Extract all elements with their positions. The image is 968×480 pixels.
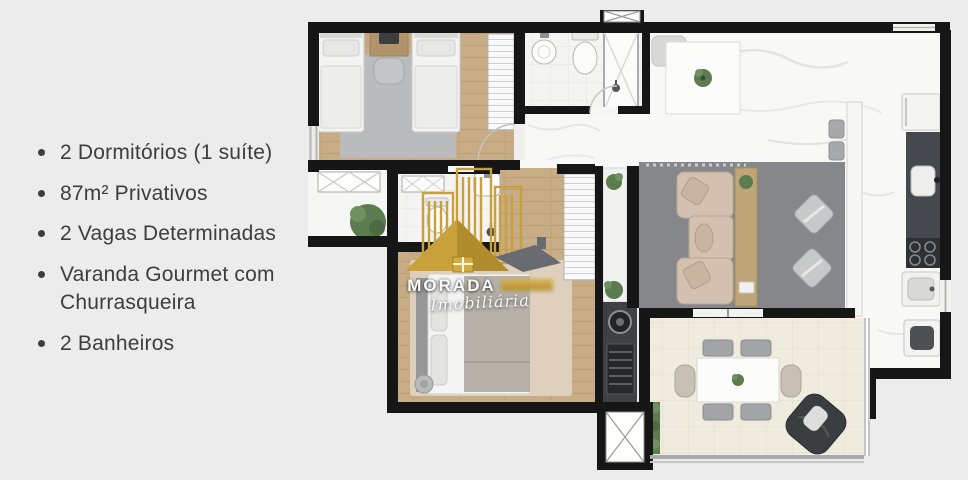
single-bed-right <box>412 28 460 132</box>
bullet-icon <box>38 340 45 347</box>
washer <box>904 320 940 356</box>
bullet-icon <box>38 271 45 278</box>
list-item: 2 Banheiros <box>34 330 302 358</box>
feature-text: 2 Banheiros <box>60 330 174 358</box>
feature-text: Varanda Gourmet com Churrasqueira <box>60 261 302 316</box>
bullet-icon <box>38 230 45 237</box>
bullet-icon <box>38 149 45 156</box>
feature-items: 2 Dormitórios (1 suíte) 87m² Privativos … <box>34 139 302 357</box>
fridge <box>902 94 940 130</box>
suite-toilet <box>426 198 448 233</box>
laundry-sink <box>902 272 940 306</box>
feature-text: 87m² Privativos <box>60 180 208 208</box>
feature-list: 2 Dormitórios (1 suíte) 87m² Privativos … <box>34 139 302 370</box>
list-item: 2 Vagas Determinadas <box>34 220 302 248</box>
plant <box>350 204 386 240</box>
bullet-icon <box>38 190 45 197</box>
suite-wardrobe <box>564 174 595 280</box>
kitchen-counter <box>906 132 940 238</box>
shower-stall <box>604 32 638 110</box>
feature-text: 2 Dormitórios (1 suíte) <box>60 139 272 167</box>
double-bed <box>416 274 530 394</box>
closet-shelves <box>488 34 514 130</box>
desk-chair <box>374 58 404 84</box>
list-item: Varanda Gourmet com Churrasqueira <box>34 261 302 316</box>
barbecue-grill <box>603 302 637 402</box>
cooktop <box>906 238 940 268</box>
list-item: 87m² Privativos <box>34 180 302 208</box>
feature-text: 2 Vagas Determinadas <box>60 220 276 248</box>
toilet <box>572 31 598 74</box>
kitchen-island <box>847 102 862 316</box>
list-item: 2 Dormitórios (1 suíte) <box>34 139 302 167</box>
suite-shower-glass <box>402 176 444 192</box>
tv-console <box>735 168 757 306</box>
ac-units <box>318 172 380 192</box>
floorplan-image <box>298 10 958 474</box>
suite-stool <box>415 375 433 393</box>
single-bed-left <box>318 28 364 132</box>
